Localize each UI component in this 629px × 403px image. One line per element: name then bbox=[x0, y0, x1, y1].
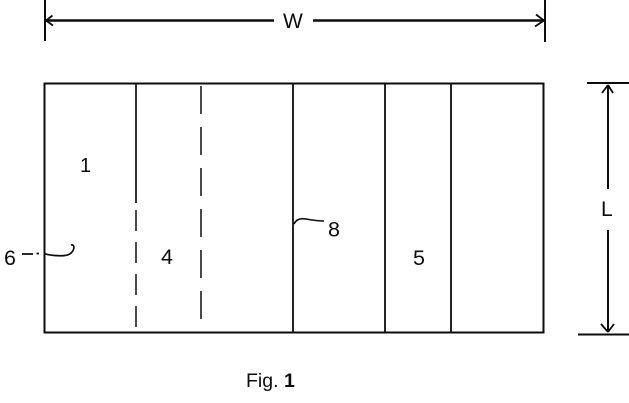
svg-text:L: L bbox=[601, 198, 613, 221]
svg-text:6: 6 bbox=[4, 246, 16, 270]
svg-text:1: 1 bbox=[80, 155, 91, 177]
svg-text:4: 4 bbox=[161, 245, 173, 269]
svg-text:Fig. 1: Fig. 1 bbox=[246, 370, 295, 392]
svg-text:W: W bbox=[283, 10, 303, 33]
svg-text:5: 5 bbox=[413, 246, 425, 270]
svg-text:8: 8 bbox=[328, 218, 340, 242]
